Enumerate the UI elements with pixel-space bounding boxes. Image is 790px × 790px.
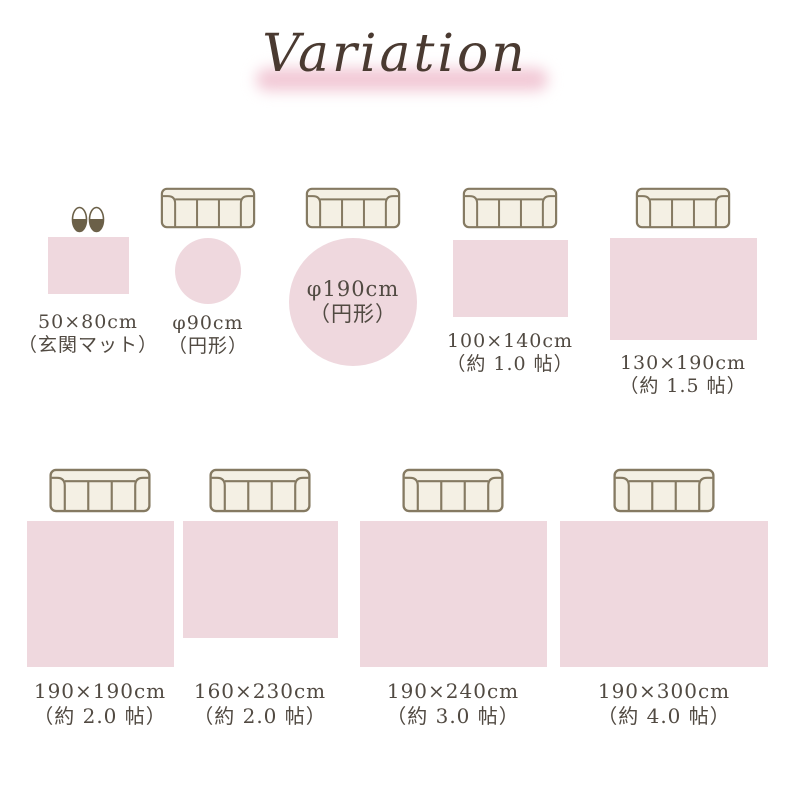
sofa-top-view-icon	[158, 187, 258, 229]
note-text: （約 3.0 帖）	[386, 704, 520, 729]
size-label: 190×240cm （約 3.0 帖）	[386, 679, 520, 729]
page-title: Variation	[0, 24, 790, 84]
size-label: 190×300cm （約 4.0 帖）	[597, 679, 731, 729]
size-text: 100×140cm	[446, 330, 573, 353]
note-text: （約 4.0 帖）	[597, 704, 731, 729]
note-text: （円形）	[307, 302, 399, 327]
note-text: （円形）	[168, 335, 248, 358]
size-label: 130×190cm （約 1.5 帖）	[619, 352, 746, 398]
variant-130x190: 130×190cm （約 1.5 帖）	[593, 187, 773, 398]
size-text: 190×240cm	[386, 679, 520, 704]
note-text: （約 1.5 帖）	[619, 375, 746, 398]
size-label: φ90cm （円形）	[168, 312, 248, 358]
rug-rectangle	[453, 240, 568, 317]
variation-infographic: Variation 50×80cm （玄関マット） φ90cm （円形） φ19…	[0, 0, 790, 790]
size-text: 190×300cm	[597, 679, 731, 704]
variant-100x140: 100×140cm （約 1.0 帖）	[420, 187, 600, 376]
size-text: φ90cm	[168, 312, 248, 335]
rug-circle	[175, 238, 241, 304]
size-label: φ190cm （円形）	[307, 277, 399, 327]
sofa-top-view-icon	[460, 187, 560, 229]
size-text: 160×230cm	[193, 679, 327, 704]
sofa-top-view-icon	[400, 468, 506, 513]
slippers-icon	[70, 206, 106, 233]
note-text: （約 1.0 帖）	[446, 353, 573, 376]
size-text: φ190cm	[307, 277, 399, 302]
rug-circle-large: φ190cm （円形）	[289, 238, 417, 366]
size-text: 130×190cm	[619, 352, 746, 375]
size-label: 100×140cm （約 1.0 帖）	[446, 330, 573, 376]
sofa-top-view-icon	[611, 468, 717, 513]
sofa-top-view-icon	[47, 468, 153, 513]
rug-rectangle	[610, 238, 757, 340]
note-text: （約 2.0 帖）	[193, 704, 327, 729]
variant-phi190: φ190cm （円形）	[263, 187, 443, 366]
rug-rectangle	[360, 521, 547, 667]
size-label: 160×230cm （約 2.0 帖）	[193, 679, 327, 729]
rug-rectangle	[183, 521, 338, 638]
sofa-top-view-icon	[303, 187, 403, 229]
rug-rectangle	[560, 521, 768, 667]
rug-rectangle	[48, 237, 129, 294]
variant-190x300: 190×300cm （約 4.0 帖）	[549, 468, 779, 729]
sofa-top-view-icon	[633, 187, 733, 229]
sofa-top-view-icon	[207, 468, 313, 513]
variant-190x240: 190×240cm （約 3.0 帖）	[338, 468, 568, 729]
